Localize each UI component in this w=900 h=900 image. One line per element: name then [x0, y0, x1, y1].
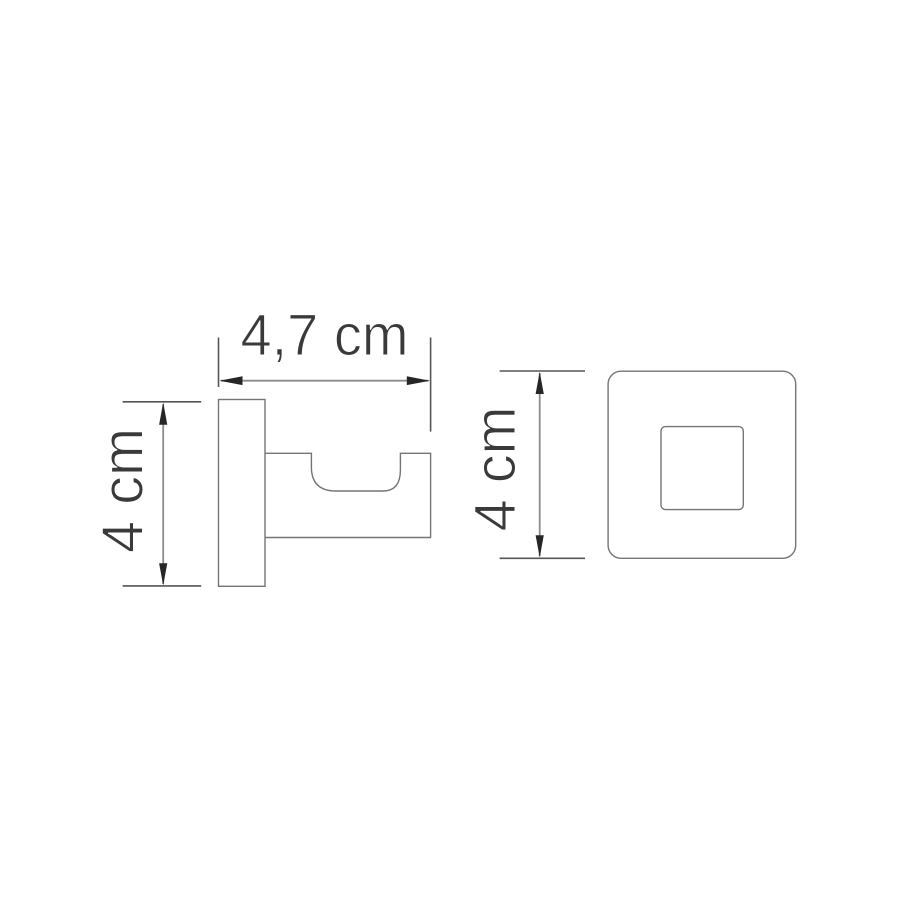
svg-text:4 cm: 4 cm	[91, 428, 156, 553]
svg-text:4 cm: 4 cm	[463, 406, 528, 531]
svg-text:4,7 cm: 4,7 cm	[241, 303, 409, 368]
